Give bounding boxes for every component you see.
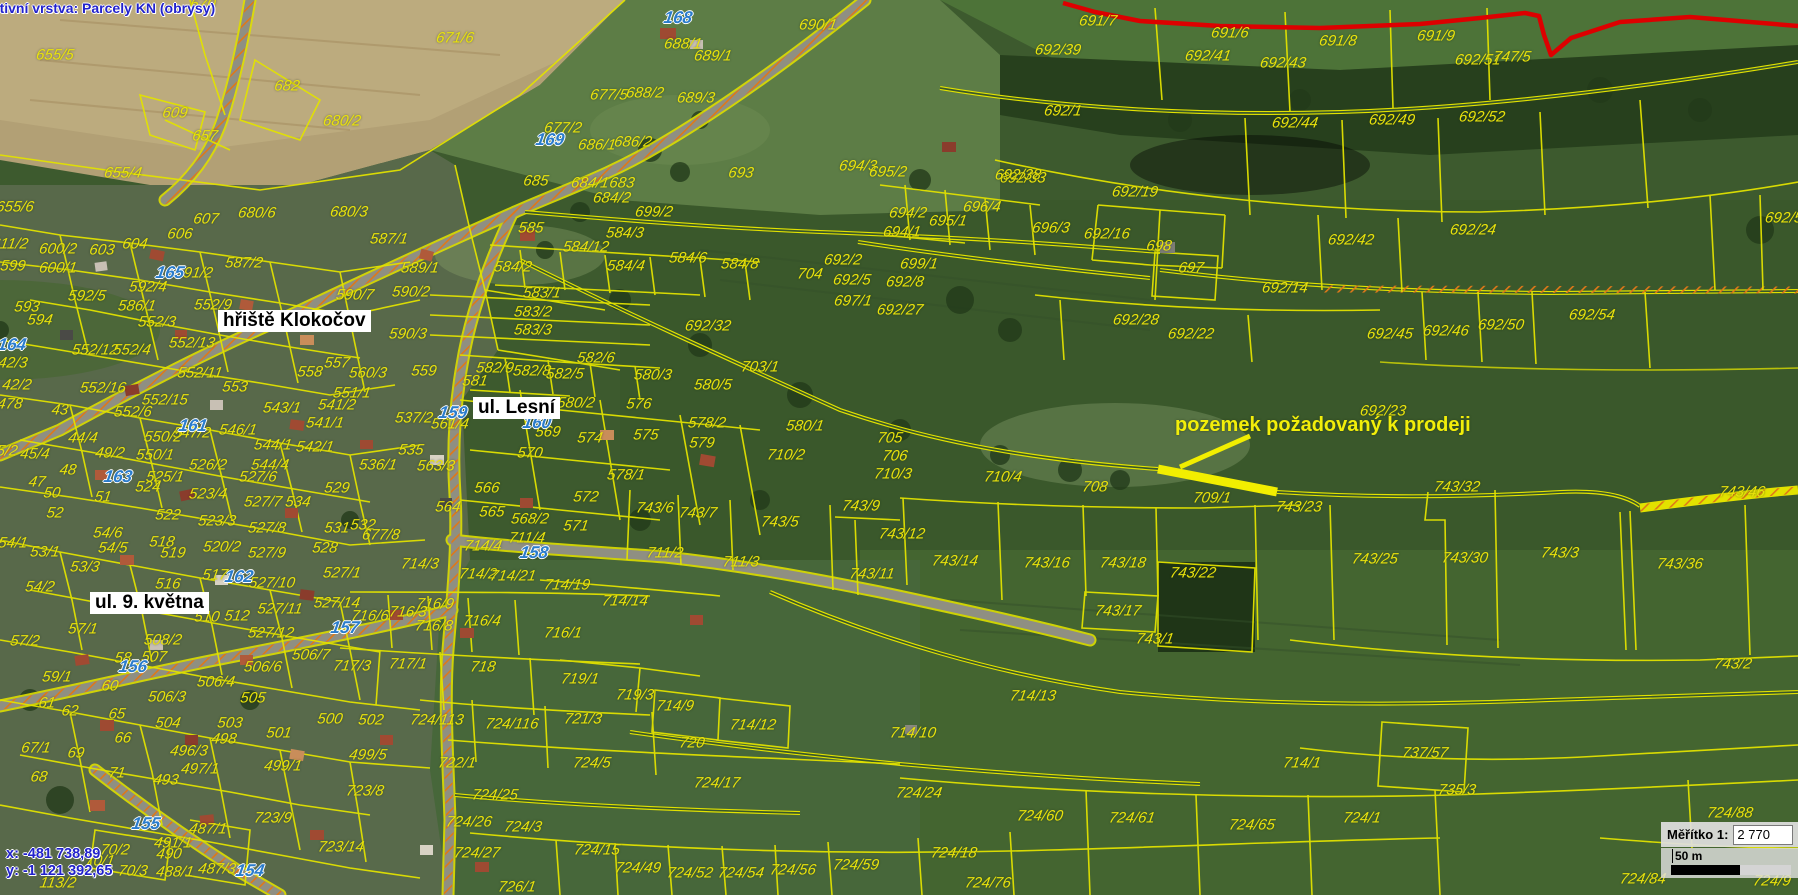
parcel-label: 491/1 — [153, 835, 193, 852]
parcel-label: 503 — [216, 715, 244, 732]
parcel-label: 696/4 — [962, 199, 1002, 216]
parcel-label: 544/1 — [253, 437, 293, 454]
parcel-label: 62 — [60, 703, 79, 720]
parcel-label: 743/30 — [1441, 550, 1490, 567]
parcel-label: 714/12 — [729, 717, 778, 734]
parcel-label: 575 — [632, 427, 660, 444]
parcel-label: 506/4 — [196, 674, 236, 691]
parcel-label: 686/2 — [613, 134, 653, 151]
parcel-label: 743/7 — [678, 505, 718, 522]
parcel-label: 57/2 — [9, 633, 41, 650]
parcel-label: 580/1 — [785, 418, 825, 435]
parcel-label: 498 — [210, 731, 238, 748]
building-parcel-label: 163 — [102, 467, 134, 487]
scale-panel: Měřítko 1: — [1661, 822, 1798, 847]
parcel-label: 587/1 — [369, 231, 409, 248]
parcel-label: 59/1 — [41, 669, 73, 686]
street-name-label: ul. 9. května — [90, 592, 209, 614]
parcel-label: 582/8 — [512, 363, 552, 380]
parcel-label: 692/49 — [1368, 112, 1417, 129]
coordinates-readout: x: -481 738,89 y: -1 121 392,65 — [6, 846, 112, 880]
parcel-label: 42/2 — [1, 377, 33, 394]
parcel-label: 54/5 — [97, 540, 129, 557]
parcel-label: 599 — [0, 258, 27, 275]
parcel-label: 552/6 — [113, 404, 153, 421]
parcel-label: 527/10 — [248, 575, 297, 592]
parcel-label: 743/12 — [878, 526, 927, 543]
parcel-label: 694/3 — [838, 158, 878, 175]
parcel-label: 584/3 — [605, 225, 645, 242]
parcel-label: 535 — [397, 442, 425, 459]
parcel-label: 692/22 — [1167, 326, 1216, 343]
parcel-label: 541/2 — [317, 397, 357, 414]
parcel-label: 724/25 — [471, 787, 520, 804]
parcel-label: 677/5 — [589, 87, 629, 104]
label-layer: 670671/6655/5682609657680/2655/4655/6688… — [0, 0, 1798, 895]
parcel-label: 551/1 — [332, 385, 372, 402]
parcel-label: 677/8 — [361, 527, 401, 544]
parcel-label: 512 — [223, 608, 251, 625]
parcel-label: 724/61 — [1108, 810, 1157, 827]
parcel-label: 500 — [316, 711, 344, 728]
parcel-label: 743/14 — [931, 553, 980, 570]
parcel-label: 714/4 — [463, 538, 503, 555]
parcel-label: 711/4 — [507, 530, 546, 547]
parcel-label: 550/1 — [135, 447, 175, 464]
parcel-label: 604 — [121, 236, 149, 253]
parcel-label: 684/1 — [570, 175, 610, 192]
parcel-label: 692/51 — [1454, 52, 1503, 69]
parcel-label: 507 — [140, 649, 168, 666]
parcel-label: 743/1 — [1135, 631, 1175, 648]
map-viewport[interactable]: 670671/6655/5682609657680/2655/4655/6688… — [0, 0, 1798, 895]
parcel-label: 478 — [0, 396, 24, 413]
building-parcel-label: 169 — [534, 130, 566, 150]
parcel-label: 566 — [473, 480, 501, 497]
parcel-label: 558 — [296, 364, 324, 381]
parcel-label: 714/14 — [601, 593, 650, 610]
parcel-label: 584/6 — [668, 250, 708, 267]
parcel-label: 704 — [796, 266, 824, 283]
parcel-label: 688/2 — [625, 85, 665, 102]
parcel-label: 724/56 — [769, 862, 818, 879]
coordinate-x: x: -481 738,89 — [6, 846, 112, 863]
parcel-label: 696/3 — [1031, 220, 1071, 237]
parcel-label: 723/14 — [317, 839, 366, 856]
parcel-label: 692/43 — [1259, 55, 1308, 72]
parcel-label: 526/2 — [188, 457, 228, 474]
parcel-label: 692/16 — [1083, 226, 1132, 243]
parcel-label: 543/1 — [262, 400, 302, 417]
parcel-label: 523/3 — [197, 513, 237, 530]
parcel-label: 527/11 — [256, 601, 303, 618]
parcel-label: 692/42 — [1327, 232, 1376, 249]
parcel-label: 657 — [191, 128, 219, 145]
parcel-label: 724/5 — [572, 755, 612, 772]
parcel-label: 527/7 — [243, 494, 283, 511]
parcel-label: 584/4 — [606, 258, 646, 275]
parcel-label: 716/9 — [415, 596, 455, 613]
parcel-label: 565 — [478, 504, 506, 521]
parcel-label: 743/32 — [1433, 479, 1482, 496]
parcel-label: 600/1 — [38, 260, 78, 277]
parcel-label: 747/5 — [1492, 49, 1532, 66]
parcel-label: 692/52 — [1458, 109, 1507, 126]
parcel-label: 699/1 — [899, 256, 939, 273]
parcel-label: 584/12 — [562, 239, 611, 256]
parcel-label: 590/2 — [391, 284, 431, 301]
building-parcel-label: 168 — [662, 8, 694, 28]
parcel-label: 724/88 — [1706, 805, 1755, 822]
parcel-label: 553 — [221, 379, 249, 396]
parcel-label: 504 — [154, 715, 182, 732]
parcel-label: 528 — [311, 540, 339, 557]
parcel-label: 499/1 — [263, 758, 303, 775]
parcel-label: 578/1 — [606, 467, 646, 484]
parcel-label: 724/59 — [832, 857, 881, 874]
parcel-label: 43 — [50, 402, 69, 419]
parcel-label: 743/22 — [1169, 565, 1218, 582]
parcel-label: 546/1 — [218, 422, 258, 439]
parcel-label: 552/15 — [141, 392, 190, 409]
parcel-label: 524 — [134, 479, 162, 496]
parcel-label: 692/45 — [1366, 326, 1415, 343]
parcel-label: 487/3 — [197, 861, 237, 878]
parcel-label: 714/10 — [889, 725, 938, 742]
parcel-label: 743/25 — [1351, 551, 1400, 568]
parcel-label: 70/3 — [117, 863, 149, 880]
coordinate-y: y: -1 121 392,65 — [6, 863, 112, 880]
parcel-label: 686/1 — [577, 137, 617, 154]
parcel-label: 692/2 — [823, 252, 863, 269]
parcel-label: 692/24 — [1449, 222, 1498, 239]
parcel-label: 547/2 — [172, 425, 212, 442]
parcel-label: 590/3 — [388, 326, 428, 343]
parcel-label: 689/1 — [693, 48, 733, 65]
scale-bar-label: 50 m — [1672, 849, 1702, 863]
parcel-label: 691/9 — [1416, 28, 1456, 45]
street-name-label: hřiště Klokočov — [218, 310, 371, 332]
building-parcel-label: 159 — [437, 403, 469, 423]
parcel-label: 680/6 — [237, 205, 277, 222]
parcel-label: 552/12 — [71, 342, 120, 359]
parcel-label: 743/23 — [1275, 499, 1324, 516]
parcel-label: 591/2 — [174, 265, 214, 282]
parcel-label: 561/4 — [430, 416, 470, 433]
parcel-label: 655/5 — [35, 47, 75, 64]
parcel-label: 44/4 — [67, 430, 99, 447]
parcel-label: 693 — [727, 165, 755, 182]
parcel-label: 508/2 — [143, 632, 183, 649]
building-parcel-label: 155 — [130, 814, 162, 834]
parcel-label: 568/2 — [510, 511, 550, 528]
parcel-label: 516 — [154, 576, 182, 593]
parcel-label: 529 — [323, 480, 351, 497]
parcel-label: 683 — [608, 175, 636, 192]
parcel-label: 603 — [88, 242, 116, 259]
parcel-label: 518 — [148, 534, 176, 551]
parcel-label: 501 — [265, 725, 293, 742]
parcel-label: 68 — [29, 769, 48, 786]
parcel-label: 714/2 — [458, 566, 498, 583]
parcel-label: 61 — [37, 695, 56, 712]
parcel-label: 541/1 — [305, 415, 345, 432]
parcel-label: 655/6 — [0, 199, 35, 216]
parcel-label: 49/2 — [94, 445, 126, 462]
parcel-label: 534 — [284, 494, 312, 511]
parcel-label: 42/3 — [0, 355, 29, 372]
active-layer-label: aktivní vrstva: Parcely KN (obrysy) — [0, 0, 215, 16]
parcel-label: 488/1 — [155, 864, 195, 881]
parcel-label: 726/1 — [497, 879, 537, 895]
building-parcel-label: 165 — [154, 263, 186, 283]
parcel-label: 743/9 — [841, 498, 881, 515]
parcel-label: 692/1 — [1043, 103, 1083, 120]
parcel-label: 66 — [113, 730, 132, 747]
parcel-label: 572 — [572, 489, 600, 506]
parcel-label: 671/6 — [435, 30, 475, 47]
parcel-label: 580/3 — [633, 367, 673, 384]
parcel-label: 586/1 — [117, 298, 157, 315]
parcel-label: 692/46 — [1422, 323, 1471, 340]
parcel-label: 552/16 — [79, 380, 128, 397]
parcel-label: 694/1 — [882, 224, 922, 241]
parcel-label: 716/3 — [388, 604, 428, 621]
parcel-label: 685 — [522, 173, 550, 190]
parcel-label: 552/11 — [176, 365, 223, 382]
parcel-label: 53/3 — [69, 559, 101, 576]
parcel-label: 692/8 — [885, 274, 925, 291]
parcel-label: 523/4 — [188, 486, 228, 503]
parcel-label: 692/27 — [876, 302, 925, 319]
parcel-label: 710/3 — [873, 466, 913, 483]
parcel-label: 585 — [517, 220, 545, 237]
parcel-label: 710/4 — [983, 469, 1023, 486]
parcel-label: 583/2 — [513, 304, 553, 321]
parcel-label: 724/84 — [1619, 871, 1668, 888]
parcel-label: 571 — [562, 518, 590, 535]
parcel-label: 692/19 — [1111, 184, 1160, 201]
parcel-label: 552/13 — [168, 335, 217, 352]
parcel-label: 527/1 — [322, 565, 362, 582]
parcel-label: 691/8 — [1318, 33, 1358, 50]
building-parcel-label: 157 — [329, 618, 361, 638]
parcel-label: 711/2 — [645, 545, 684, 562]
parcel-label: 593 — [13, 299, 41, 316]
parcel-label: 711/3 — [721, 554, 760, 571]
parcel-label: 708 — [1081, 479, 1109, 496]
parcel-label: 694/2 — [888, 205, 928, 222]
parcel-label: 724/17 — [693, 775, 742, 792]
parcel-label: 527/14 — [313, 595, 362, 612]
parcel-label: 724/18 — [930, 845, 979, 862]
parcel-label: 584/2 — [493, 259, 533, 276]
parcel-label: 609 — [161, 105, 189, 122]
parcel-label: 506/7 — [291, 647, 331, 664]
parcel-label: 699/2 — [634, 204, 674, 221]
parcel-label: 743/17 — [1094, 603, 1143, 620]
parcel-label: 580/2 — [556, 395, 596, 412]
parcel-label: 490 — [155, 846, 183, 863]
parcel-label: 552/4 — [112, 342, 152, 359]
parcel-label: 692/32 — [684, 318, 733, 335]
parcel-label: 716/4 — [462, 613, 502, 630]
parcel-label: 692/44 — [1271, 115, 1320, 132]
parcel-label: 525/1 — [145, 469, 185, 486]
parcel-label: 45/2 — [0, 443, 19, 460]
parcel-label: 697/1 — [833, 293, 873, 310]
parcel-label: 584/8 — [720, 256, 760, 273]
parcel-label: 557 — [323, 355, 351, 372]
parcel-label: 611/2 — [0, 236, 30, 253]
parcel-label: 589/1 — [400, 260, 440, 277]
parcel-label: 724/26 — [445, 814, 494, 831]
parcel-label: 692/5 — [832, 272, 872, 289]
parcel-label: 723/9 — [253, 810, 293, 827]
parcel-label: 53/1 — [29, 544, 61, 561]
parcel-label: 735/3 — [1437, 782, 1477, 799]
parcel-label: 50 — [42, 485, 61, 502]
building-parcel-label: 162 — [223, 567, 255, 587]
parcel-label: 695/2 — [868, 164, 908, 181]
scale-input[interactable] — [1733, 825, 1793, 845]
parcel-label: 684/2 — [592, 190, 632, 207]
parcel-label: 580/5 — [693, 377, 733, 394]
parcel-label: 719/1 — [560, 671, 600, 688]
parcel-label: 743/5 — [760, 514, 800, 531]
parcel-label: 582/6 — [576, 350, 616, 367]
parcel-label: 559 — [410, 363, 438, 380]
parcel-label: 544/4 — [250, 457, 290, 474]
parcel-label: 724/1 — [1342, 810, 1382, 827]
parcel-label: 563/3 — [416, 458, 456, 475]
parcel-label: 505 — [239, 690, 267, 707]
parcel-label: 592/4 — [128, 279, 168, 296]
parcel-label: 692/28 — [1112, 312, 1161, 329]
parcel-label: 522 — [154, 507, 182, 524]
parcel-label: 47 — [27, 474, 46, 491]
scale-label: Měřítko 1: — [1667, 827, 1728, 842]
parcel-label: 692/53 — [1764, 210, 1798, 227]
parcel-label: 689/3 — [676, 90, 716, 107]
parcel-label: 655/4 — [103, 165, 143, 182]
parcel-label: 560/3 — [348, 365, 388, 382]
parcel-label: 710/2 — [766, 447, 806, 464]
parcel-label: 54/2 — [24, 579, 56, 596]
parcel-label: 714/1 — [1282, 755, 1322, 772]
parcel-label: 692/38 — [994, 167, 1043, 184]
parcel-label: 717/3 — [332, 658, 372, 675]
parcel-label: 688/1 — [663, 36, 703, 53]
parcel-label: 527/9 — [247, 545, 287, 562]
parcel-label: 717/1 — [388, 656, 428, 673]
parcel-label: 54/1 — [0, 535, 29, 552]
callout-label: pozemek požadovaný k prodeji — [1175, 414, 1471, 437]
parcel-label: 69 — [66, 745, 85, 762]
parcel-label: 690/1 — [798, 17, 838, 34]
parcel-label: 564 — [434, 499, 462, 516]
parcel-label: 718 — [469, 659, 497, 676]
parcel-label: 527/8 — [247, 520, 287, 537]
parcel-label: 743/46 — [1718, 484, 1767, 501]
building-parcel-label: 156 — [117, 657, 149, 677]
parcel-label: 51 — [93, 489, 112, 506]
parcel-label: 724/52 — [666, 865, 715, 882]
parcel-label: 569 — [534, 424, 562, 441]
parcel-label: 737/57 — [1401, 745, 1450, 762]
parcel-label: 578/2 — [687, 415, 727, 432]
parcel-label: 583/3 — [513, 322, 553, 339]
parcel-label: 692/14 — [1261, 280, 1310, 297]
parcel-label: 536/1 — [358, 457, 398, 474]
parcel-label: 487/1 — [188, 821, 228, 838]
parcel-label: 716/6 — [350, 608, 390, 625]
parcel-label: 691/6 — [1210, 25, 1250, 42]
parcel-label: 576 — [625, 396, 653, 413]
parcel-label: 493 — [152, 772, 180, 789]
parcel-label: 724/65 — [1228, 817, 1277, 834]
parcel-label: 724/3 — [503, 819, 543, 836]
parcel-label: 52 — [45, 505, 64, 522]
parcel-label: 692/54 — [1568, 307, 1617, 324]
parcel-label: 743/36 — [1656, 556, 1705, 573]
parcel-label: 542/1 — [295, 439, 335, 456]
parcel-label: 594 — [26, 312, 54, 329]
parcel-label: 581 — [461, 373, 489, 390]
parcel-label: 65 — [107, 706, 126, 723]
parcel-label: 506/6 — [243, 659, 283, 676]
parcel-label: 45/4 — [19, 446, 51, 463]
parcel-label: 716/1 — [543, 625, 583, 642]
parcel-label: 743/2 — [1713, 656, 1753, 673]
parcel-label: 506/3 — [147, 689, 187, 706]
building-parcel-label: 161 — [177, 416, 209, 436]
parcel-label: 692/39 — [1034, 42, 1083, 59]
parcel-label: 57/1 — [67, 621, 99, 638]
street-name-label: ul. Lesní — [473, 397, 560, 419]
parcel-label: 680/2 — [322, 113, 362, 130]
parcel-label: 705 — [876, 430, 904, 447]
parcel-label: 606 — [166, 226, 194, 243]
parcel-label: 587/2 — [224, 255, 264, 272]
parcel-label: 54/6 — [92, 525, 124, 542]
parcel-label: 607 — [192, 211, 220, 228]
parcel-label: 502 — [357, 712, 385, 729]
parcel-label: 574 — [576, 430, 604, 447]
parcel-label: 497/1 — [180, 761, 220, 778]
parcel-label: 691/7 — [1078, 13, 1118, 30]
parcel-label: 499/5 — [348, 747, 388, 764]
parcel-label: 723/8 — [345, 783, 385, 800]
building-parcel-label: 158 — [518, 543, 550, 563]
parcel-label: 71 — [107, 765, 126, 782]
parcel-label: 67/1 — [20, 740, 52, 757]
parcel-label: 724/60 — [1016, 808, 1065, 825]
parcel-label: 724/24 — [895, 785, 944, 802]
parcel-label: 698 — [1145, 238, 1173, 255]
scale-bar — [1671, 865, 1740, 875]
parcel-label: 695/1 — [928, 213, 968, 230]
parcel-label: 743/3 — [1540, 545, 1580, 562]
parcel-label: 724/116 — [484, 716, 540, 733]
scale-bar-panel: 50 m — [1661, 848, 1798, 878]
parcel-label: 714/19 — [543, 577, 592, 594]
parcel-label: 680/3 — [329, 204, 369, 221]
parcel-label: 692/41 — [1184, 48, 1233, 65]
parcel-label: 743/18 — [1099, 555, 1148, 572]
parcel-label: 582/5 — [545, 366, 585, 383]
parcel-label: 720 — [678, 735, 706, 752]
